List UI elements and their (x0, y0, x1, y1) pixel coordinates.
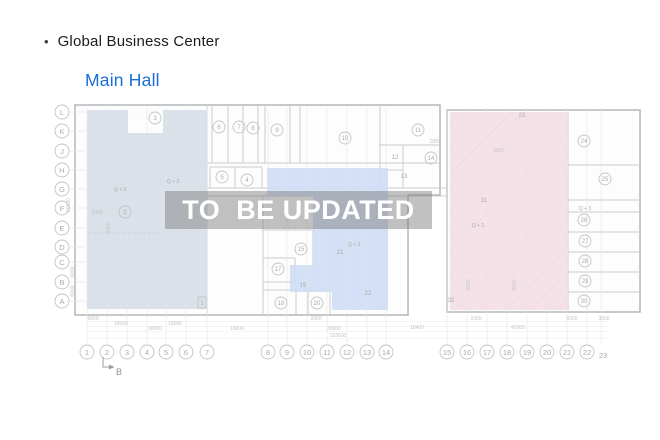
dimension-label: 18400 (410, 325, 424, 331)
room-number-label: 31 (481, 198, 488, 204)
dimension-label: 153600 (330, 333, 347, 339)
room-number-label: 17 (275, 267, 282, 273)
grid-row-label: C (59, 258, 65, 267)
dimension-label: 18000 (168, 321, 182, 327)
grid-column-label: 2 (105, 348, 109, 357)
area-label: Q + 3 (472, 223, 485, 229)
grid-column-label: 22 (583, 348, 591, 357)
grid-column-label: 6 (184, 348, 188, 357)
grid-column-label: 5 (164, 348, 168, 357)
grid-row-label: F (60, 204, 65, 213)
watermark-text: TO BE UPDATED (182, 195, 415, 226)
watermark-overlay: TO BE UPDATED (165, 191, 432, 229)
room-number-label: 14 (428, 156, 435, 162)
room-number-label: 30 (581, 299, 588, 305)
grid-column-label: 21 (563, 348, 571, 357)
dimension-label: 6000 (566, 316, 577, 322)
room-number-label: 20 (314, 301, 321, 307)
grid-column-label: 10 (303, 348, 311, 357)
room-number-label: 23 (519, 113, 526, 119)
dimension-label: 36000 (148, 326, 162, 332)
room-number-label: 24 (581, 139, 588, 145)
room-number-label: 12 (392, 155, 399, 161)
grid-row-label: H (59, 166, 64, 175)
room-number-label: 32 (448, 298, 455, 304)
dimension-label: 2000 (91, 210, 102, 216)
grid-column-label: 12 (343, 348, 351, 357)
grid-column-label: 19 (523, 348, 531, 357)
dimension-label: 1800 (492, 148, 503, 154)
room-number-label: 25 (602, 177, 609, 183)
dimension-label: 60000 (66, 198, 72, 212)
grid-row-label: D (59, 243, 65, 252)
grid-column-label: 1 (85, 348, 89, 357)
area-label: Q + 3 (167, 179, 180, 185)
grid-column-label: 14 (382, 348, 390, 357)
dimension-label: 6000 (70, 285, 76, 296)
dimension-label: 6000 (512, 279, 518, 290)
room-number-label: 18 (278, 301, 285, 307)
dimension-label: 6000 (466, 279, 472, 290)
room-number-label: 13 (401, 174, 408, 180)
grid-row-label: K (59, 127, 64, 136)
grid-row-label: B (59, 278, 64, 287)
page: • Global Business Center Main Hall (0, 0, 660, 440)
room-number-label: 10 (342, 136, 349, 142)
dimension-label: 36000 (327, 326, 341, 332)
dimension-label: 2000 (310, 316, 321, 322)
dimension-label: 3000 (598, 316, 609, 322)
grid-column-label: 16 (463, 348, 471, 357)
grid-column-label: 8 (266, 348, 270, 357)
dimension-label: 6000 (70, 266, 76, 277)
grid-column-label: 11 (323, 348, 331, 357)
grid-column-label: 3 (125, 348, 129, 357)
dimension-label: 6000 (87, 316, 98, 322)
grid-column-label: 15 (443, 348, 451, 357)
grid-column-label: 20 (543, 348, 551, 357)
room-number-label: 27 (582, 239, 589, 245)
area-label: Q + 3 (114, 187, 127, 193)
section-marker-label: B (116, 367, 122, 377)
room-number-label: 22 (365, 291, 372, 297)
dimension-label: 5000 (106, 222, 112, 233)
room-number-label: 21 (337, 250, 344, 256)
grid-column-label: 7 (205, 348, 209, 357)
dimension-label: 18000 (230, 326, 244, 332)
dimension-label: 18000 (114, 321, 128, 327)
grid-column-label: 17 (483, 348, 491, 357)
section-marker-arrow-icon (109, 365, 115, 370)
grid-row-label: J (60, 147, 64, 156)
grid-column-label: 23 (599, 351, 607, 360)
area-label: Q + 3 (579, 206, 592, 212)
grid-row-label: A (59, 297, 64, 306)
grid-row-label: E (59, 224, 64, 233)
room-number-label: 15 (298, 247, 305, 253)
room-number-label: 28 (582, 259, 589, 265)
room-number-label: 26 (581, 218, 588, 224)
grid-column-label: 18 (503, 348, 511, 357)
grid-column-label: 13 (363, 348, 371, 357)
room-number-label: 29 (582, 279, 589, 285)
grid-row-label: G (59, 185, 65, 194)
area-label: Q + 3 (348, 242, 361, 248)
grid-row-label: L (60, 108, 64, 117)
dimension-label: 1000 (470, 316, 481, 322)
grid-column-label: 9 (285, 348, 289, 357)
grid-column-label: 4 (145, 348, 149, 357)
room-number-label: 11 (415, 128, 422, 134)
room-number-label: 19 (300, 283, 307, 289)
dimension-label: 45000 (511, 325, 525, 331)
dimension-label: 1800 (429, 139, 440, 145)
